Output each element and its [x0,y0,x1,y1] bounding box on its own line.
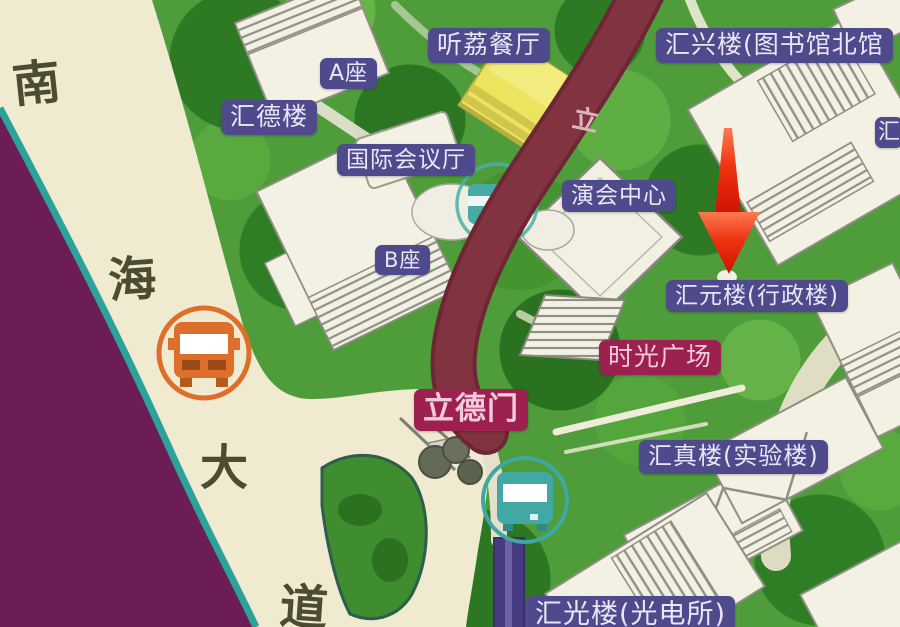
label-b-block: B座 [375,245,430,275]
label-lide-gate: 立德门 [414,389,528,431]
label-a-block: A座 [320,58,377,89]
map-artwork [0,0,900,627]
label-huiguang-building: 汇光楼(光电所) [526,596,735,627]
south-road-bar [494,538,524,627]
avenue-name-char: 大 [200,428,248,498]
label-huide-building: 汇德楼 [221,100,317,135]
avenue-name-char: 南 [8,42,63,117]
label-huixing-building: 汇兴楼(图书馆北馆 [656,28,893,63]
label-shiguang-square: 时光广场 [599,340,721,375]
label-right-edge-partial: 汇 [875,117,900,148]
building-bottom-right [800,539,900,627]
avenue-name-char: 海 [106,238,159,311]
island-foliage [338,494,382,526]
label-huizhen-lab-building: 汇真楼(实验楼) [639,440,828,474]
label-yanhui-center: 演会中心 [562,180,676,212]
island-foliage [372,538,408,582]
label-huiyuan-admin-building: 汇元楼(行政楼) [666,280,848,312]
avenue-name-char: 道 [278,566,331,627]
label-international-conference-hall: 国际会议厅 [337,144,475,176]
label-tingli-restaurant: 听荔餐厅 [428,28,550,63]
campus-map: 南 海 大 道 立 听荔餐厅 汇兴楼(图书馆北馆 汇德楼 A座 国际会议厅 B座… [0,0,900,627]
